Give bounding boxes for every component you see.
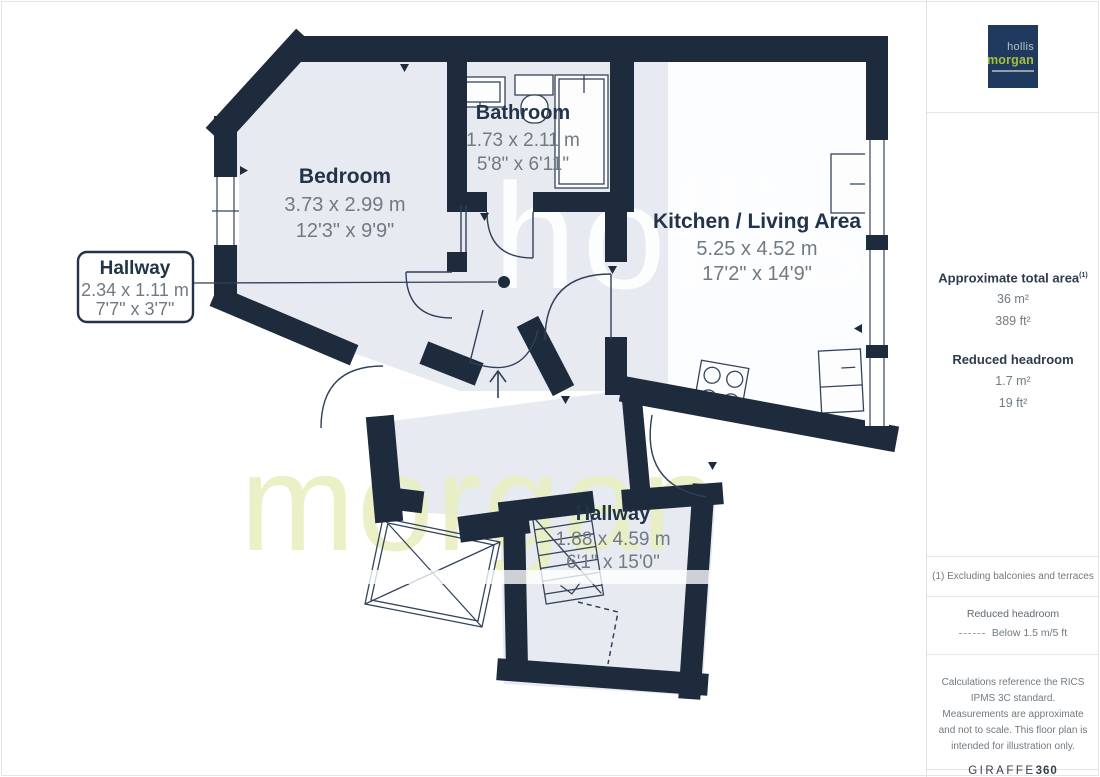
kitchen-window-1 — [865, 140, 889, 235]
svg-text:7'7" x 3'7": 7'7" x 3'7" — [96, 299, 175, 319]
svg-text:12'3" x 9'9": 12'3" x 9'9" — [296, 220, 395, 242]
svg-text:6'1" x 15'0": 6'1" x 15'0" — [566, 552, 660, 573]
reduced-headroom-m2: 1.7 m² — [927, 370, 1099, 392]
logo-section: hollis morgan — [927, 0, 1099, 113]
disclaimer-section: Calculations reference the RICS IPMS 3C … — [927, 655, 1099, 770]
floor-plan: hollis morgan — [0, 0, 926, 777]
watermark-underline-band — [85, 570, 915, 584]
area-section: Approximate total area(1) 36 m² 389 ft² … — [927, 113, 1099, 557]
room-label-bathroom: Bathroom 1.73 x 2.11 m 5'8" x 6'11" — [466, 102, 580, 175]
svg-text:2.34 x 1.11 m: 2.34 x 1.11 m — [81, 280, 189, 300]
kitchen-window-3 — [865, 358, 889, 426]
room-label-bedroom: Bedroom 3.73 x 2.99 m 12'3" x 9'9" — [284, 165, 405, 242]
giraffe-number: 360 — [1036, 765, 1058, 777]
bedroom-window — [212, 177, 239, 245]
svg-text:Hallway: Hallway — [576, 503, 651, 525]
legend-value: Below 1.5 m/5 ft — [992, 627, 1067, 639]
logo-underline — [992, 70, 1034, 72]
svg-text:5.25 x 4.52 m: 5.25 x 4.52 m — [696, 238, 817, 260]
floorplan-page: hollis morgan — [0, 0, 1100, 777]
svg-text:Kitchen / Living Area: Kitchen / Living Area — [653, 210, 861, 233]
footnote-text: (1) Excluding balconies and terraces — [932, 571, 1094, 582]
callout-anchor-dot — [498, 276, 510, 288]
svg-text:3.73 x 2.99 m: 3.73 x 2.99 m — [284, 194, 405, 216]
reduced-headroom-ft2: 19 ft² — [927, 392, 1099, 414]
kitchen-sink-icon — [818, 349, 863, 413]
logo-word-hollis: hollis — [1007, 41, 1034, 53]
total-area-m2: 36 m² — [927, 288, 1099, 310]
svg-text:17'2" x 14'9": 17'2" x 14'9" — [702, 263, 812, 285]
info-panel: hollis morgan Approximate total area(1) … — [926, 0, 1099, 777]
total-area-ft2: 389 ft² — [927, 310, 1099, 332]
svg-text:Bedroom: Bedroom — [299, 165, 391, 188]
svg-text:Hallway: Hallway — [100, 258, 171, 279]
hollis-morgan-logo: hollis morgan — [988, 25, 1038, 88]
reduced-headroom-heading: Reduced headroom — [927, 349, 1099, 370]
kitchen-window-2 — [865, 250, 889, 345]
disclaimer-text: Calculations reference the RICS IPMS 3C … — [937, 675, 1089, 755]
total-area-heading: Approximate total area(1) — [927, 265, 1099, 288]
svg-text:Bathroom: Bathroom — [476, 102, 570, 124]
legend-section: Reduced headroom Below 1.5 m/5 ft — [927, 597, 1099, 655]
dashed-line-icon — [959, 633, 985, 634]
footnote-section: (1) Excluding balconies and terraces — [927, 557, 1099, 597]
svg-text:1.88 x 4.59 m: 1.88 x 4.59 m — [555, 529, 670, 550]
legend-title: Reduced headroom — [927, 608, 1099, 620]
svg-text:1.73 x 2.11 m: 1.73 x 2.11 m — [466, 130, 580, 151]
svg-text:5'8" x 6'11": 5'8" x 6'11" — [477, 154, 569, 175]
watermark-hollis: hollis — [493, 152, 871, 320]
giraffe-word: GIRAFFE — [968, 765, 1035, 777]
logo-word-morgan: morgan — [987, 53, 1034, 67]
footnote-marker: (1) — [1079, 272, 1088, 279]
